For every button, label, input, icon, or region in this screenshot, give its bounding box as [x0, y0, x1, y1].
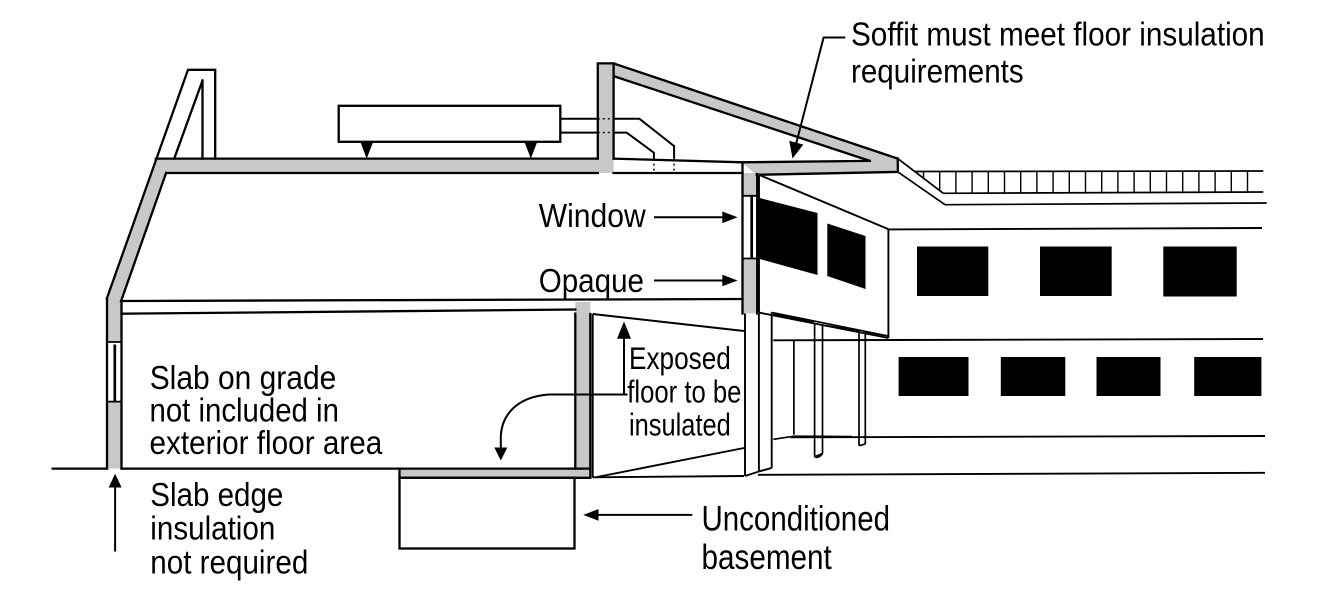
- svg-text:exterior floor area: exterior floor area: [150, 424, 383, 461]
- svg-text:Slab edge: Slab edge: [150, 476, 283, 513]
- svg-text:requirements: requirements: [851, 53, 1024, 90]
- svg-text:Window: Window: [539, 197, 646, 234]
- svg-text:Soffit must meet floor insulat: Soffit must meet floor insulation: [851, 15, 1265, 52]
- svg-text:Opaque: Opaque: [539, 262, 644, 299]
- svg-text:Exposed: Exposed: [629, 340, 731, 376]
- svg-text:basement: basement: [702, 538, 833, 577]
- svg-text:Unconditioned: Unconditioned: [702, 500, 891, 539]
- svg-text:floor to be: floor to be: [627, 373, 741, 409]
- svg-text:insulation: insulation: [150, 510, 275, 547]
- svg-text:not required: not required: [150, 543, 308, 580]
- svg-text:not included in: not included in: [150, 392, 339, 429]
- svg-text:insulated: insulated: [629, 407, 731, 443]
